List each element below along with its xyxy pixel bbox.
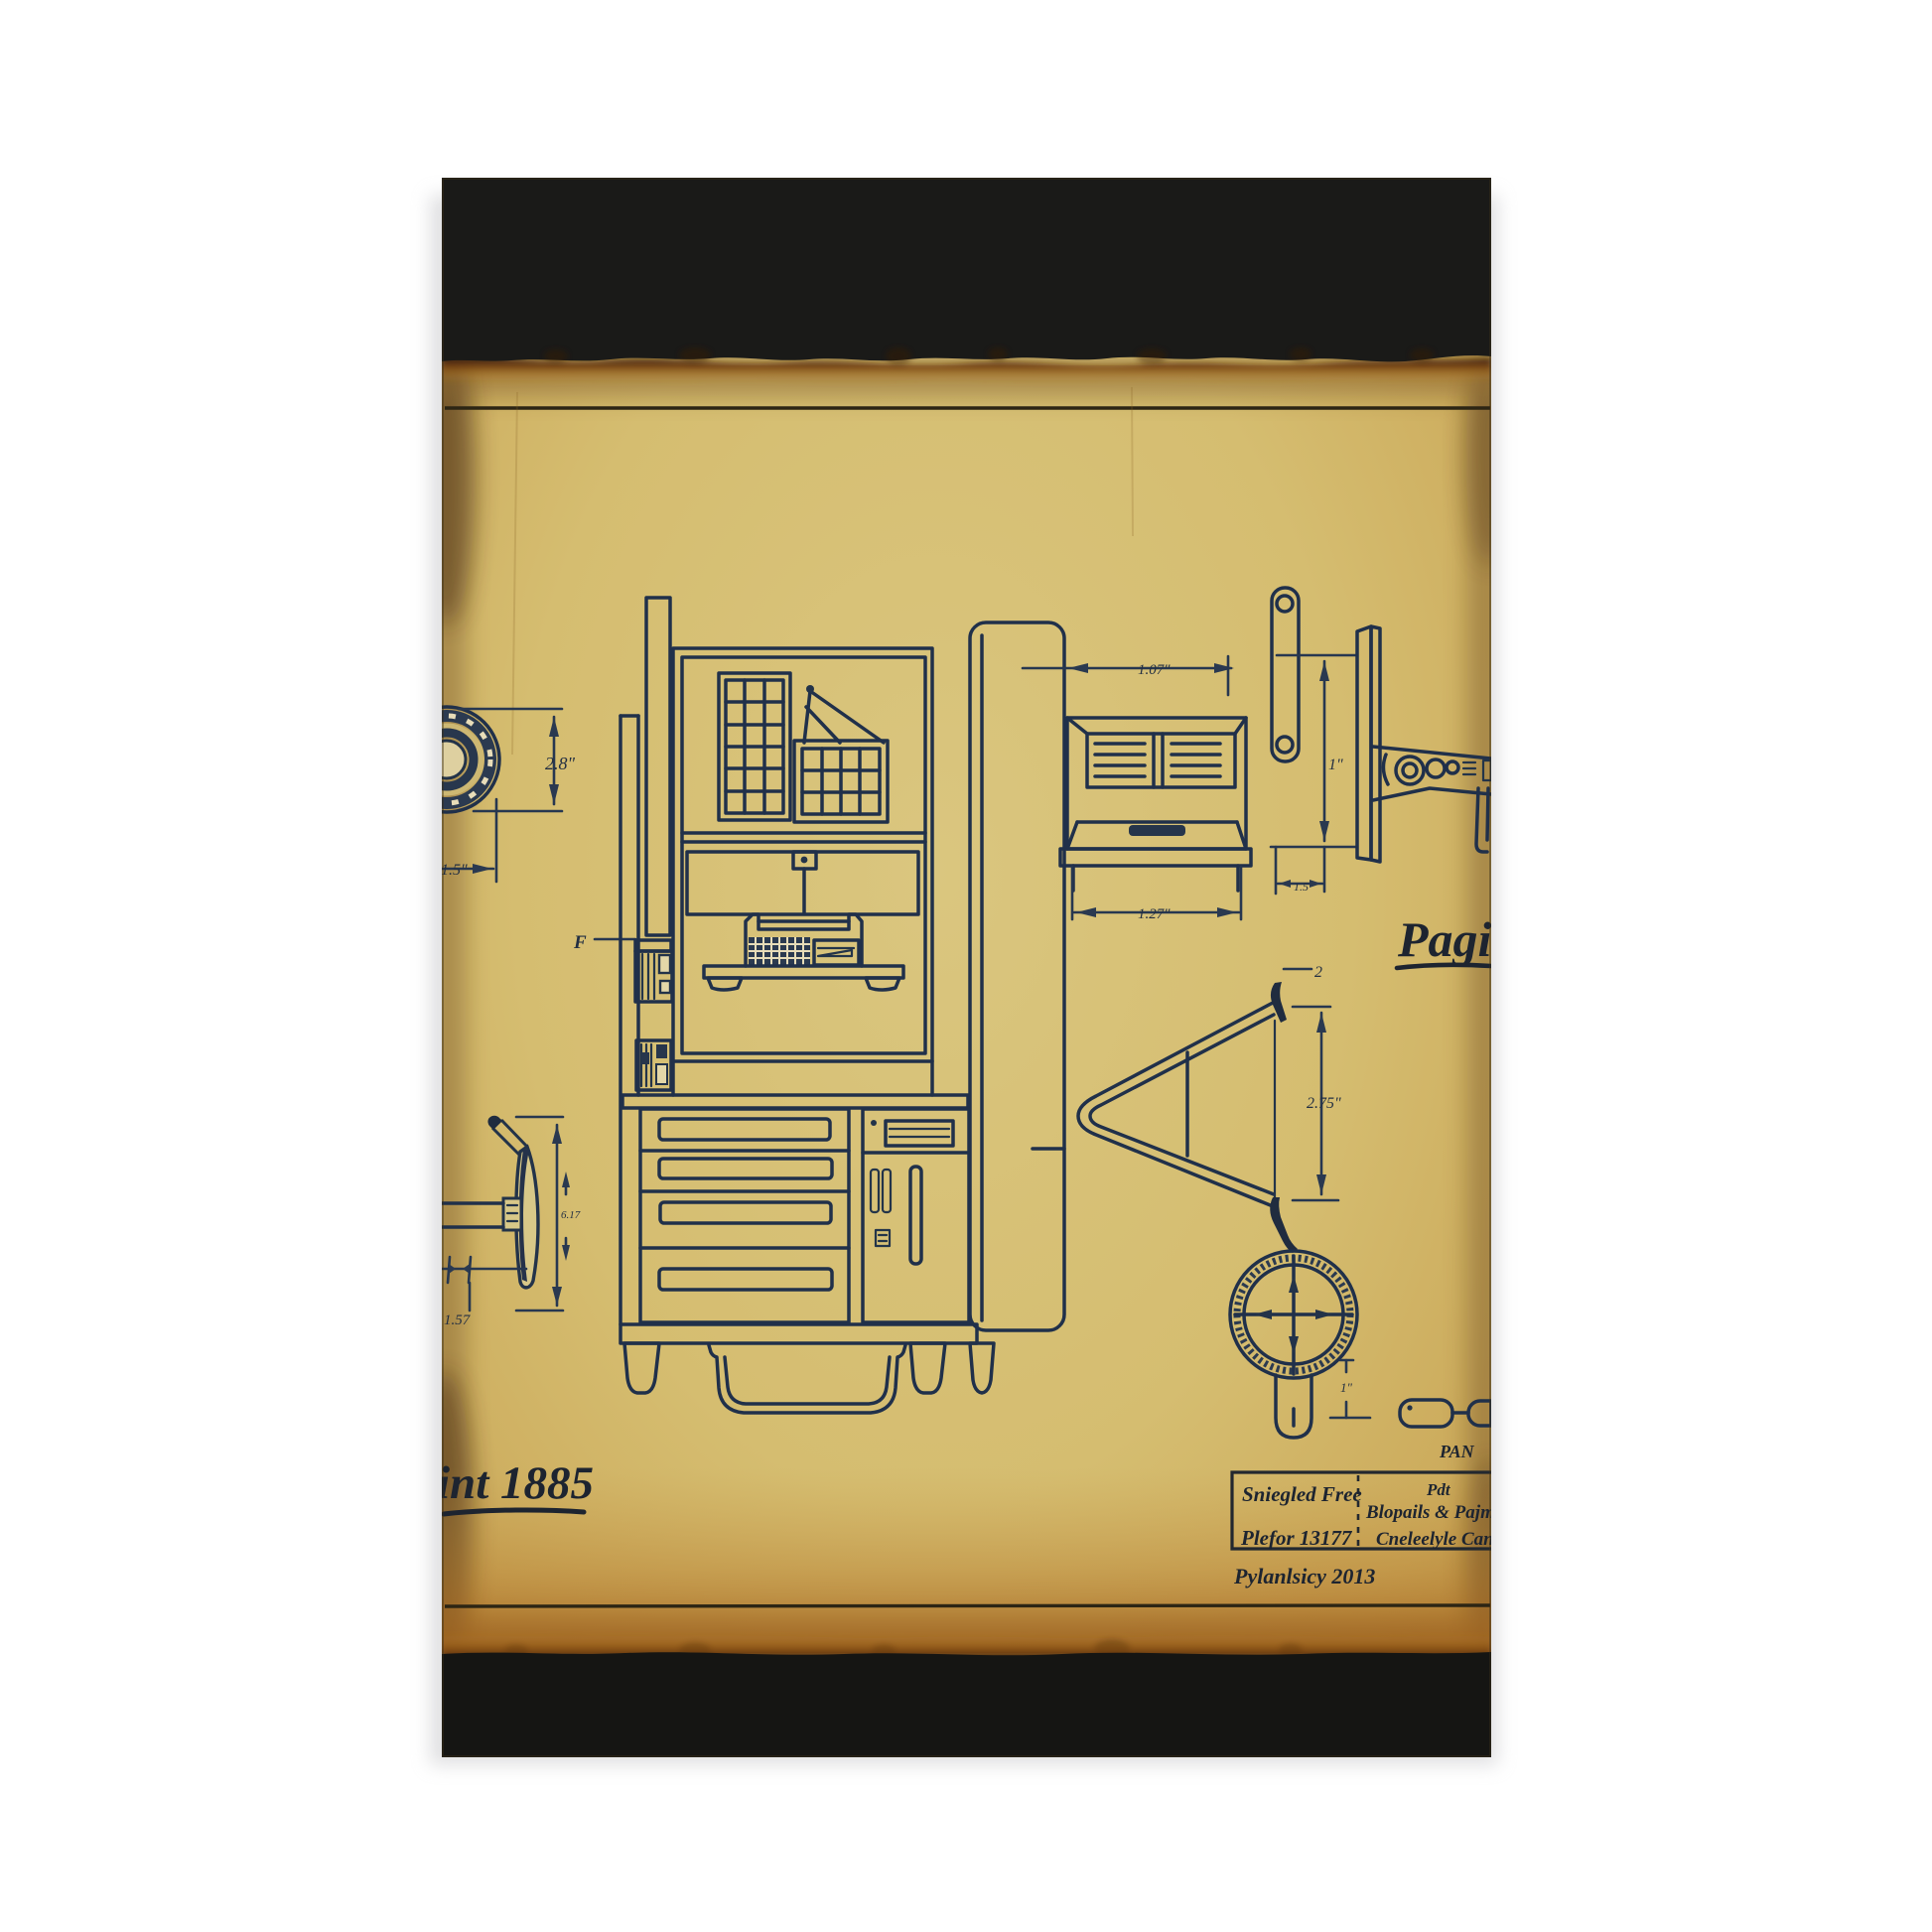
svg-text:Blopails & Pajm: Blopails & Pajm (1365, 1502, 1495, 1523)
svg-text:2.8": 2.8" (545, 754, 576, 773)
svg-text:1.5": 1.5" (441, 862, 468, 879)
svg-text:Pagi: Pagi (1397, 911, 1492, 967)
svg-text:2: 2 (1314, 964, 1322, 981)
svg-text:int 1885: int 1885 (437, 1457, 594, 1509)
svg-text:Pdt: Pdt (1426, 1480, 1451, 1499)
svg-text:F: F (573, 932, 587, 953)
svg-text:2.75": 2.75" (1307, 1095, 1341, 1112)
svg-text:Sniegled Free: Sniegled Free (1242, 1482, 1362, 1506)
svg-text:1": 1" (1328, 757, 1343, 773)
svg-text:1.5: 1.5 (1294, 880, 1309, 894)
svg-text:Cneleelyle Can: Cneleelyle Can (1376, 1529, 1494, 1550)
svg-text:1.07": 1.07" (1138, 662, 1171, 678)
svg-text:6.17: 6.17 (561, 1209, 581, 1221)
svg-text:Plefor 13177: Plefor 13177 (1240, 1526, 1353, 1550)
svg-text:1": 1" (1340, 1380, 1353, 1395)
svg-text:1.27": 1.27" (1138, 906, 1171, 922)
svg-text:PAN: PAN (1439, 1442, 1475, 1461)
svg-text:Pylanlsicy 2013: Pylanlsicy 2013 (1233, 1564, 1375, 1588)
svg-text:1.57: 1.57 (444, 1312, 472, 1328)
